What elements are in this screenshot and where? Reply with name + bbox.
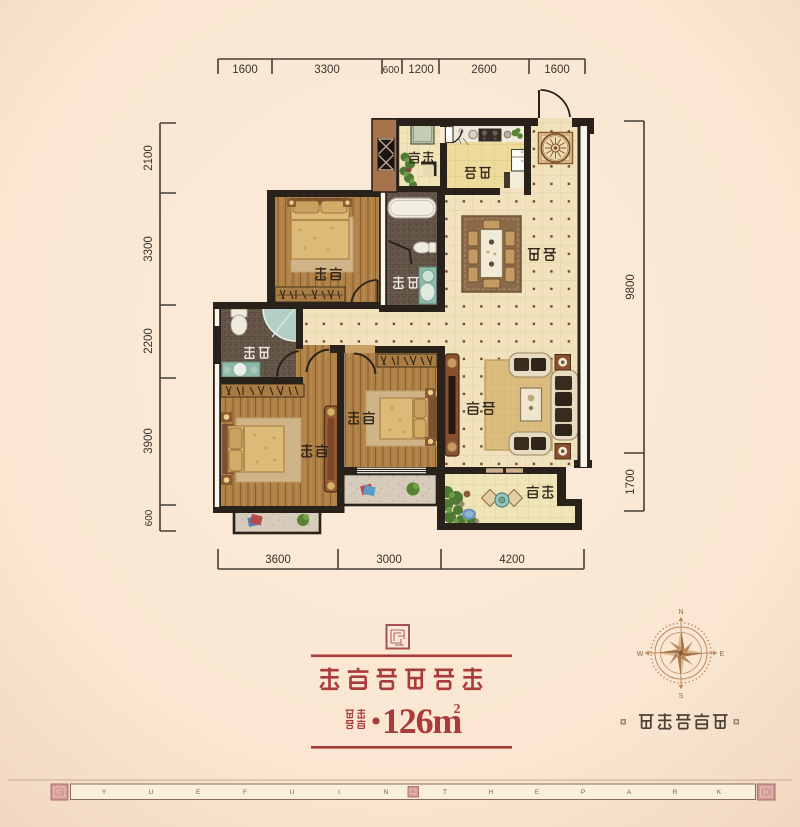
svg-text:K: K bbox=[717, 789, 722, 796]
svg-text:W: W bbox=[637, 651, 644, 658]
svg-text:9800: 9800 bbox=[625, 274, 637, 300]
svg-text:E: E bbox=[535, 789, 540, 796]
svg-text:2: 2 bbox=[454, 702, 461, 717]
svg-text:U: U bbox=[149, 789, 154, 796]
svg-text:3300: 3300 bbox=[314, 64, 340, 76]
svg-text:E: E bbox=[196, 789, 201, 796]
svg-text:S: S bbox=[679, 693, 684, 700]
svg-text:4200: 4200 bbox=[499, 554, 525, 566]
svg-text:N: N bbox=[678, 609, 683, 616]
svg-text:126m: 126m bbox=[382, 701, 462, 741]
svg-text:I: I bbox=[338, 789, 340, 796]
svg-text:E: E bbox=[720, 651, 725, 658]
svg-text:1600: 1600 bbox=[544, 64, 570, 76]
svg-text:1600: 1600 bbox=[232, 64, 258, 76]
svg-text:2200: 2200 bbox=[143, 328, 155, 354]
svg-text:T: T bbox=[443, 789, 447, 796]
svg-text:N: N bbox=[384, 789, 389, 796]
svg-text:600: 600 bbox=[383, 65, 400, 76]
svg-text:600: 600 bbox=[144, 509, 155, 526]
svg-text:2100: 2100 bbox=[143, 145, 155, 171]
svg-text:H: H bbox=[489, 789, 494, 796]
svg-text:1700: 1700 bbox=[625, 469, 637, 495]
svg-text:2600: 2600 bbox=[471, 64, 497, 76]
svg-text:R: R bbox=[673, 789, 678, 796]
svg-text:3300: 3300 bbox=[143, 236, 155, 262]
svg-text:A: A bbox=[627, 789, 632, 796]
svg-text:3600: 3600 bbox=[265, 554, 291, 566]
svg-text:3000: 3000 bbox=[376, 554, 402, 566]
svg-text:Y: Y bbox=[102, 789, 107, 796]
svg-text:1200: 1200 bbox=[408, 64, 434, 76]
svg-text:U: U bbox=[290, 789, 295, 796]
svg-text:F: F bbox=[243, 789, 247, 796]
svg-text:3900: 3900 bbox=[143, 428, 155, 454]
svg-text:P: P bbox=[581, 789, 585, 796]
